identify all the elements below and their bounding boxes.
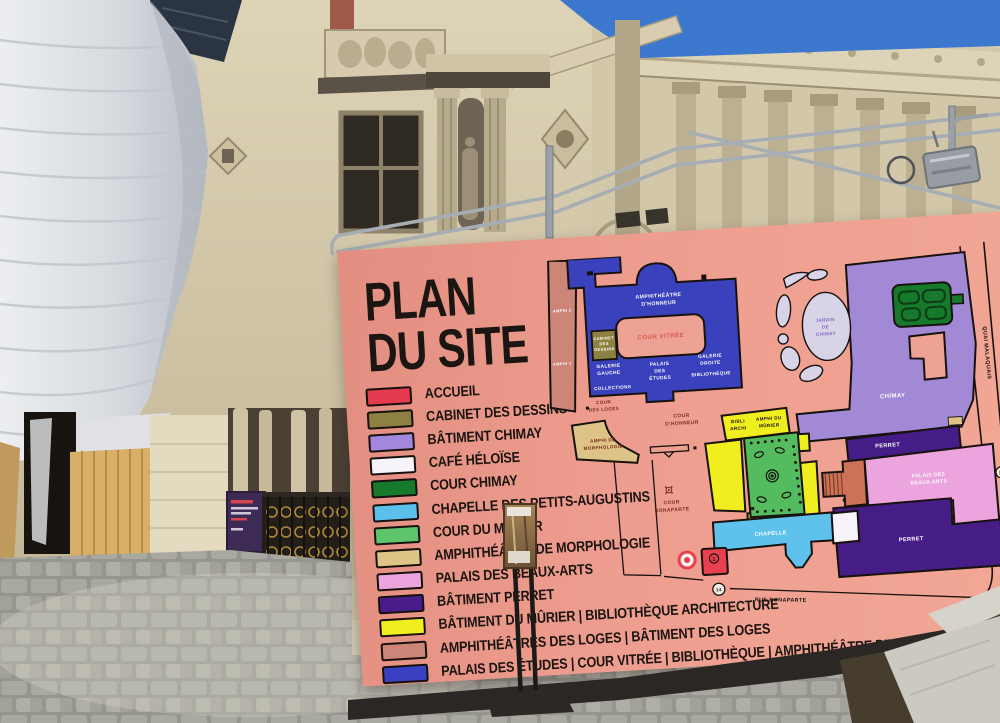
legend-swatch (374, 525, 421, 546)
map-label-cabinet: DES (599, 341, 609, 347)
sign-title-line2: DU SITE (366, 319, 529, 380)
map-label-cabinet: CABINET (593, 335, 614, 341)
map-cour-vitree (616, 314, 706, 359)
map-label-amphi1: AMPHI 1 (553, 361, 572, 367)
map-cour-chimay (892, 281, 964, 327)
street-scene: PLAN DU SITE ACCUEIL CABINET DES DESSINS… (0, 0, 1000, 723)
legend-label: ACCUEIL (424, 383, 480, 402)
legend-swatch (372, 501, 419, 522)
map-label-jardin: JARDIN (815, 317, 835, 323)
legend-swatch (371, 478, 418, 499)
info-sign-purple (227, 492, 265, 552)
map-label-amph-honneur: AMPHITHÉÂTRE (635, 290, 682, 301)
legend-label: COUR CHIMAY (430, 473, 518, 494)
legend-swatch (367, 409, 414, 430)
legend-swatch (376, 571, 423, 592)
window (341, 113, 421, 231)
legend-label: BÂTIMENT PERRET (437, 587, 555, 610)
legend-swatch (380, 640, 427, 661)
legend-swatch (369, 455, 416, 476)
legend-swatch (379, 617, 426, 638)
legend-swatch (382, 663, 429, 684)
stone-pier (150, 415, 228, 563)
site-plan-board: PLAN DU SITE ACCUEIL CABINET DES DESSINS… (337, 212, 1000, 687)
statue (465, 137, 475, 147)
legend-label: COUR DU MÛRIER (433, 518, 543, 540)
legend: ACCUEIL CABINET DES DESSINS BÂTIMENT CHI… (365, 348, 1000, 687)
map-label-cour-vitree: COUR VITRÉE (637, 331, 684, 342)
map-label-amphi2: AMPHI 2 (553, 307, 572, 313)
legend-swatch (375, 548, 422, 569)
map-cabinet-des-dessins (591, 330, 617, 360)
map-label-galerie-droite: GALERIE (698, 353, 723, 360)
legend-swatch (368, 432, 415, 453)
map-label-amph-honneur: D'HONNEUR (641, 300, 676, 308)
doorway (24, 412, 76, 554)
sign-title: PLAN DU SITE (363, 268, 530, 380)
wooden-hoarding (70, 448, 150, 568)
legend-swatch (365, 386, 412, 407)
map-label-jardin: CHIMAY (816, 331, 836, 337)
map-label-palais-etudes: PALAIS (649, 361, 669, 368)
legend-label: BÂTIMENT CHIMAY (427, 425, 542, 448)
map-label-jardin: DE (822, 324, 829, 329)
map-label-galerie-gauche: GALERIE (596, 363, 621, 370)
legend-swatch (378, 594, 425, 615)
map-label-cabinet: DESSINS (594, 346, 615, 352)
legend-label: CAFÉ HÉLOÏSE (428, 450, 520, 471)
